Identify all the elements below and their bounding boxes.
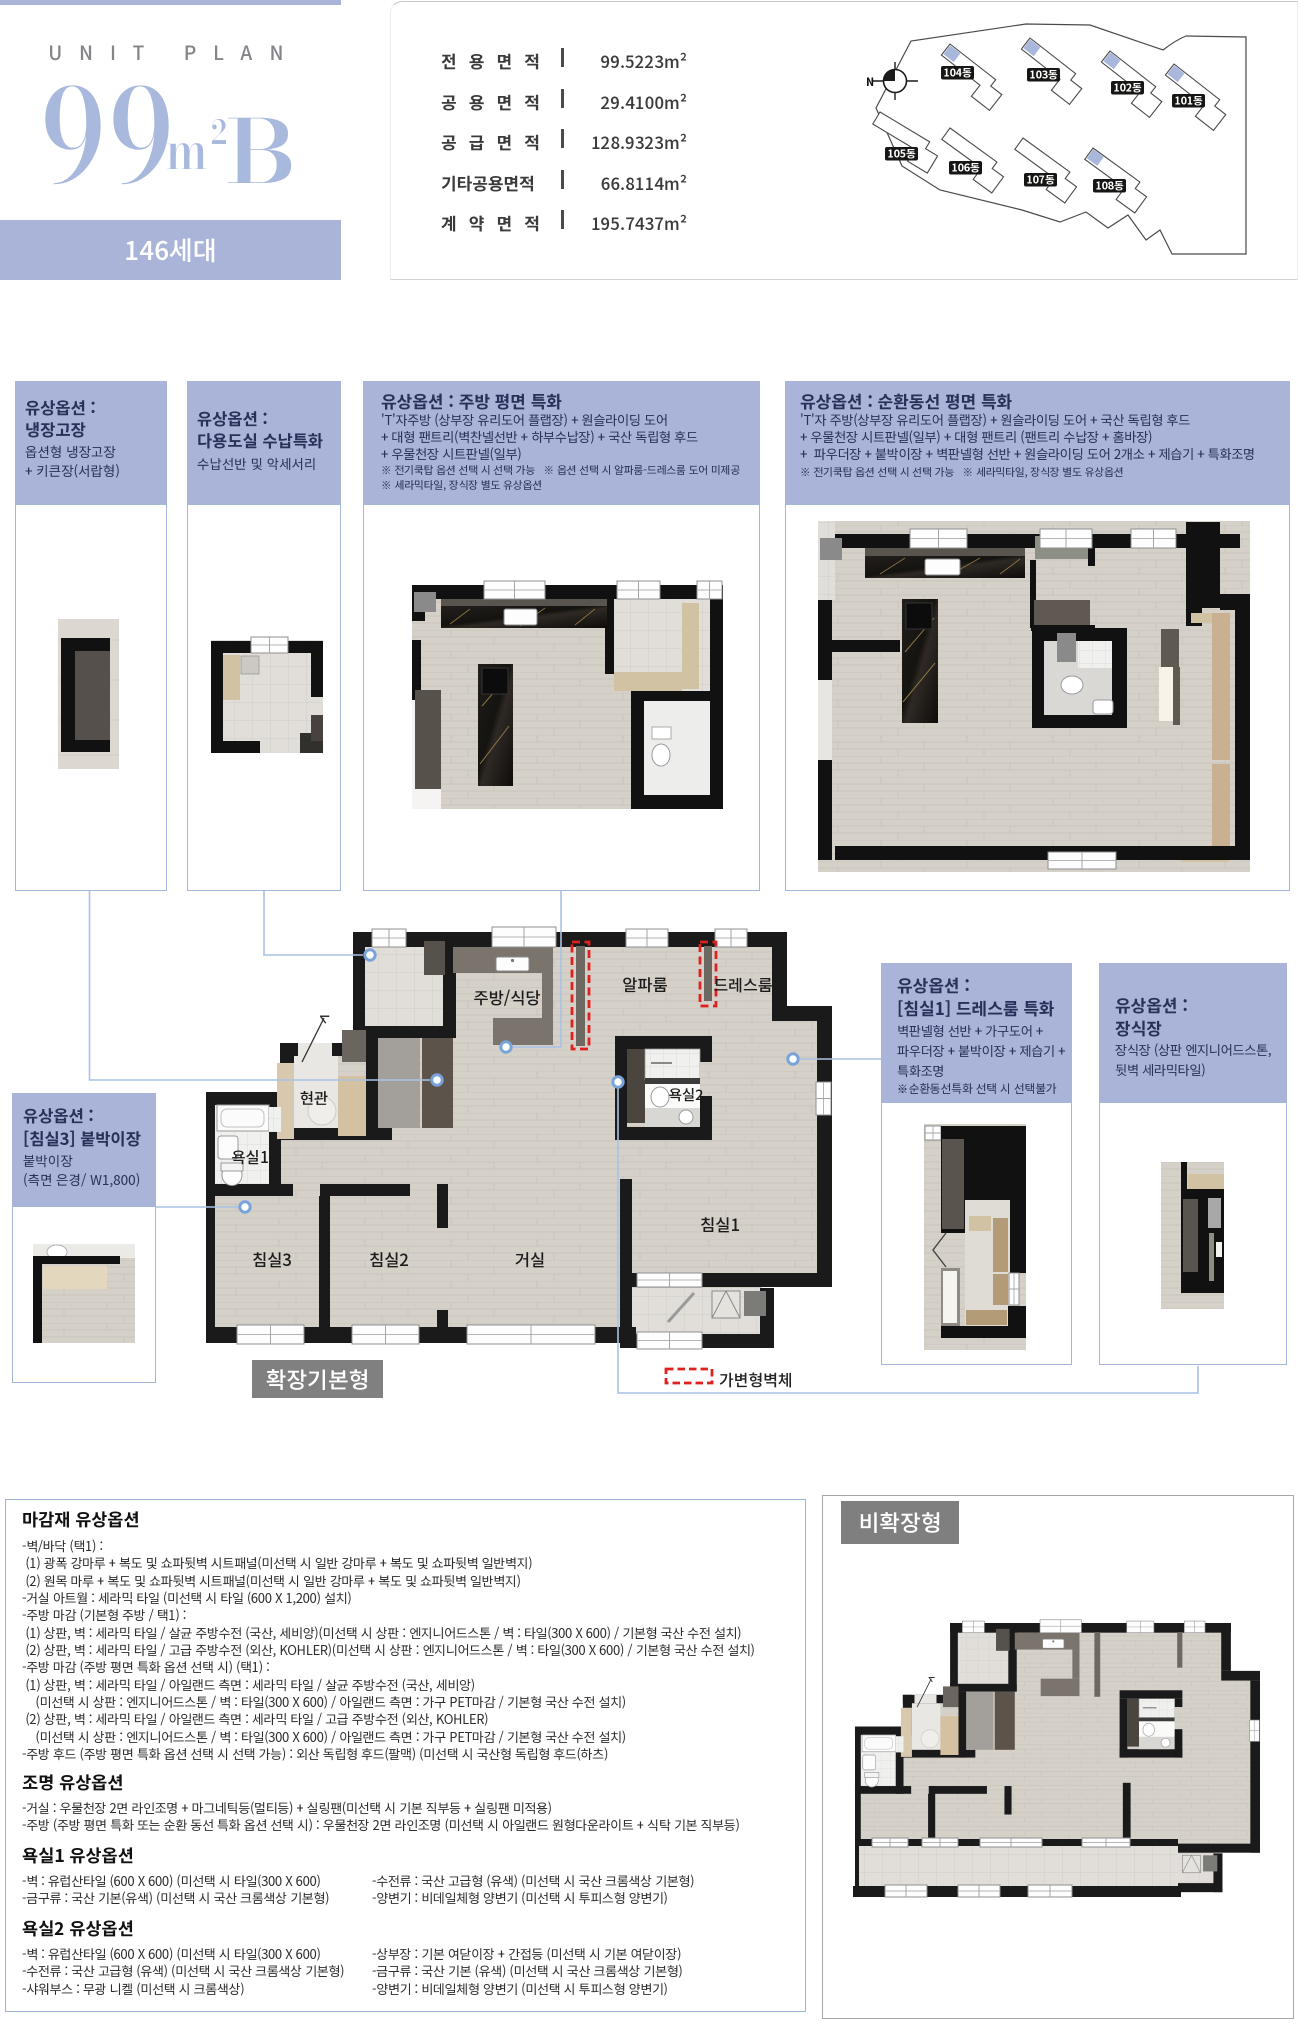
svg-text:침실3: 침실3 xyxy=(252,1247,292,1271)
svg-text:침실1: 침실1 xyxy=(700,1212,740,1236)
svg-text:주방/식당: 주방/식당 xyxy=(473,985,540,1009)
svg-text:107동: 107동 xyxy=(1026,173,1055,188)
svg-text:106동: 106동 xyxy=(951,161,980,176)
svg-text:105동: 105동 xyxy=(887,147,916,162)
svg-text:108동: 108동 xyxy=(1095,179,1124,194)
svg-text:103동: 103동 xyxy=(1029,68,1058,83)
svg-text:101동: 101동 xyxy=(1174,94,1203,109)
svg-text:침실2: 침실2 xyxy=(369,1247,409,1271)
svg-text:현관: 현관 xyxy=(300,1087,329,1109)
svg-text:N: N xyxy=(866,74,874,90)
svg-text:거실: 거실 xyxy=(515,1247,545,1271)
svg-text:드레스룸: 드레스룸 xyxy=(714,972,773,996)
svg-text:욕실1: 욕실1 xyxy=(231,1146,268,1168)
svg-text:욕실2: 욕실2 xyxy=(669,1084,704,1105)
svg-text:알파룸: 알파룸 xyxy=(622,972,668,996)
svg-text:102동: 102동 xyxy=(1113,81,1142,96)
svg-text:104동: 104동 xyxy=(943,66,972,81)
